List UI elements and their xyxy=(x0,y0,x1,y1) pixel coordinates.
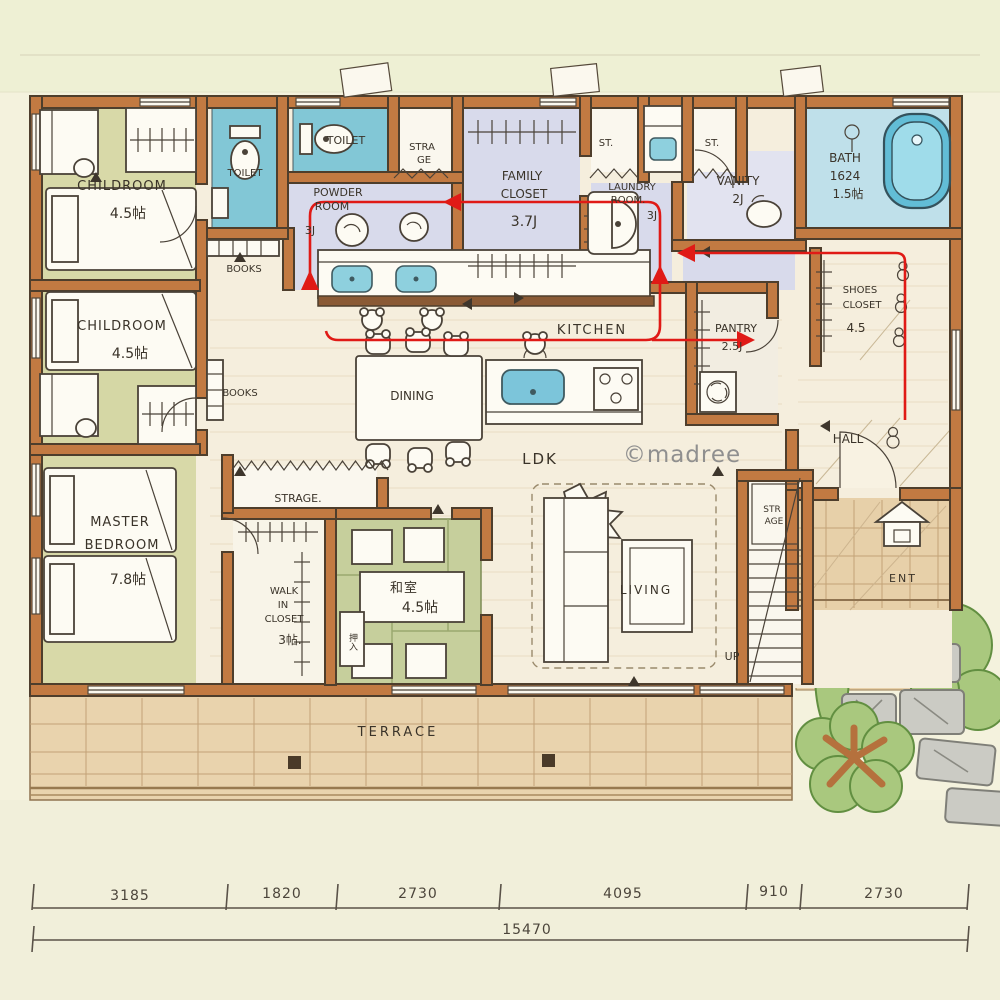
label-powder-1: POWDER xyxy=(313,186,363,199)
label-childroom1-size: 4.5帖 xyxy=(110,206,146,222)
label-powder-size: 3J xyxy=(305,224,315,237)
label-laundry-1: LAUNDRY xyxy=(608,182,656,193)
dim-3185: 3185 xyxy=(110,888,150,904)
label-st2: ST. xyxy=(705,138,719,149)
label-childroom2: CHILDROOM xyxy=(77,319,167,334)
label-tatami-closet: 押入 xyxy=(347,632,358,651)
dim-4095: 4095 xyxy=(603,886,643,902)
label-hall: HALL xyxy=(833,432,864,446)
label-childroom2-size: 4.5帖 xyxy=(112,346,148,362)
label-family-closet-2: CLOSET xyxy=(501,187,548,201)
label-strage-mid: STRAGE. xyxy=(274,492,321,505)
label-bath-size: 1.5帖 xyxy=(832,186,863,201)
label-stair-storage-2: AGE xyxy=(765,517,784,527)
label-master-1: MASTER xyxy=(90,515,150,530)
label-stair-storage-1: STR xyxy=(763,505,780,515)
label-wic-1: WALK xyxy=(270,586,299,597)
floor-plan-drawing: CHILDROOM 4.5帖 CHILDROOM 4.5帖 TOILET TOI… xyxy=(0,0,1000,1000)
label-living: LIVING xyxy=(620,583,672,597)
label-powder-2: ROOM xyxy=(315,200,349,213)
label-tatami: 和室 xyxy=(390,580,418,596)
label-up: UP xyxy=(725,650,740,663)
terrace-post xyxy=(542,754,555,767)
watermark: ©madree xyxy=(623,442,741,468)
dim-2730b: 2730 xyxy=(864,886,904,902)
label-toilet2: TOILET xyxy=(326,134,366,147)
label-bath-model: 1624 xyxy=(830,169,861,183)
terrace-post xyxy=(288,756,301,769)
dim-1820: 1820 xyxy=(262,886,302,902)
mirror xyxy=(336,214,368,246)
label-pantry: PANTRY xyxy=(715,322,757,335)
label-master-2: BEDROOM xyxy=(85,538,160,553)
utility-cabinet xyxy=(644,106,682,172)
label-wic-3: CLOSET xyxy=(265,614,305,625)
label-st1: ST. xyxy=(599,138,613,149)
dim-910: 910 xyxy=(759,884,789,900)
label-books-mid: BOOKS xyxy=(222,388,257,399)
label-ldk: LDK xyxy=(522,450,558,468)
label-family-closet-size: 3.7J xyxy=(511,214,537,230)
label-wic-2: IN xyxy=(278,600,288,611)
sofa xyxy=(544,498,608,662)
label-dining: DINING xyxy=(390,389,434,403)
label-shoes-1: SHOES xyxy=(843,285,877,296)
terrace-deck xyxy=(30,696,792,800)
label-master-size: 7.8帖 xyxy=(110,572,146,588)
dim-2730a: 2730 xyxy=(398,886,438,902)
label-tatami-size: 4.5帖 xyxy=(402,600,438,616)
floor-plan-page: CHILDROOM 4.5帖 CHILDROOM 4.5帖 TOILET TOI… xyxy=(0,0,1000,1000)
label-family-closet-1: FAMILY xyxy=(502,169,543,183)
mirror xyxy=(400,213,428,241)
label-vanity-size: 2J xyxy=(732,192,743,206)
label-ent: ENT xyxy=(889,572,917,585)
label-shoes-size: 4.5 xyxy=(846,321,865,335)
label-pantry-size: 2.5J xyxy=(722,340,743,353)
label-books-top: BOOKS xyxy=(226,264,261,275)
label-strage-top-2: GE xyxy=(417,155,431,166)
label-vanity: VANITY xyxy=(717,174,760,188)
entrance-porch xyxy=(798,498,950,610)
stove xyxy=(594,368,638,410)
label-laundry-2: ROOM. xyxy=(611,195,646,206)
label-toilet1: TOILET xyxy=(227,168,264,179)
label-childroom1: CHILDROOM xyxy=(77,179,167,194)
label-laundry-size: 3J xyxy=(647,209,657,222)
label-kitchen: KITCHEN xyxy=(557,323,627,338)
label-bath: BATH xyxy=(829,151,861,165)
label-strage-top-1: STRA xyxy=(409,142,435,153)
label-terrace: TERRACE xyxy=(357,725,439,740)
label-wic-size: 3帖. xyxy=(278,632,301,647)
dim-total: 15470 xyxy=(502,922,552,938)
label-shoes-2: CLOSET xyxy=(843,300,883,311)
